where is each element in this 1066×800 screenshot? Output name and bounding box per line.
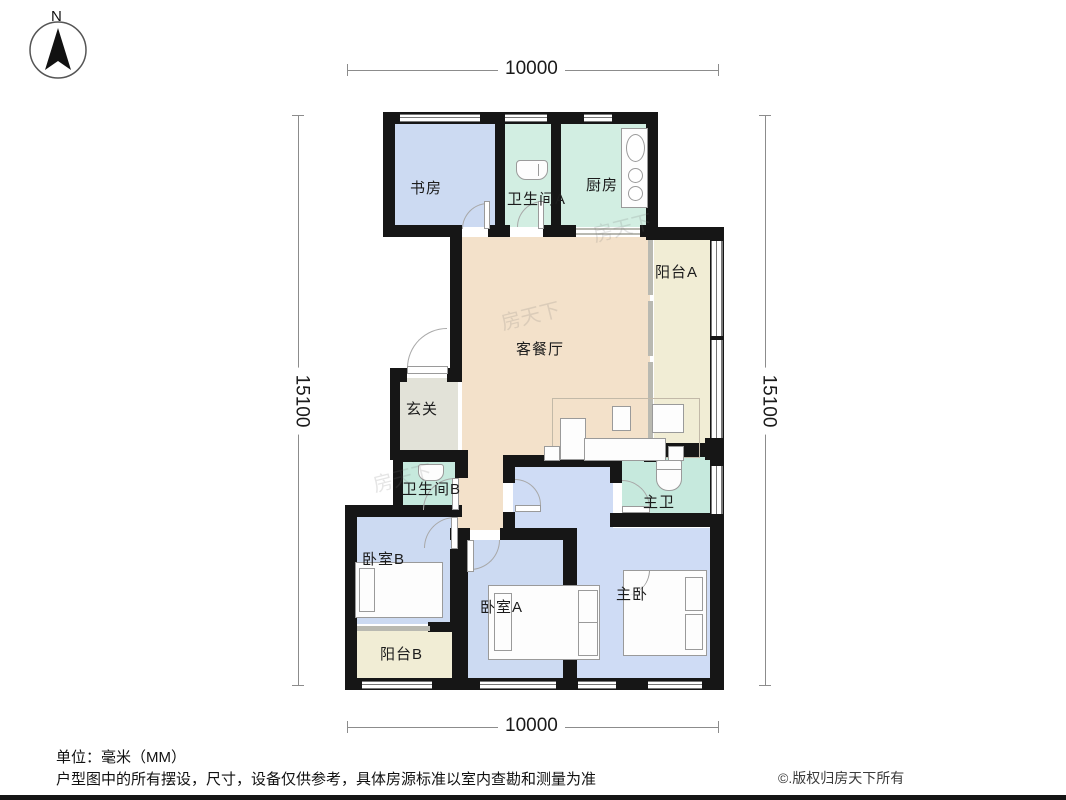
dimension-tick — [718, 64, 719, 76]
window — [505, 114, 547, 122]
table-icon — [612, 406, 631, 431]
disclaimer: 户型图中的所有摆设，尺寸，设备仅供参考，具体房源标准以室内查勘和测量为准 — [56, 768, 596, 789]
dimension-tick — [292, 685, 304, 686]
dimension-tick — [347, 64, 348, 76]
room-label-master-bath: 主卫 — [643, 491, 675, 512]
sofa-icon — [584, 438, 666, 461]
dimension-label-left: 15100 — [290, 368, 312, 435]
wall — [452, 540, 468, 690]
window — [711, 241, 723, 336]
room-label-living-dining: 客餐厅 — [516, 338, 564, 359]
kitchen-sink-icon — [626, 134, 645, 162]
compass-north-label: N — [51, 8, 62, 25]
door-leaf-study — [484, 201, 490, 229]
burner-icon — [628, 168, 643, 183]
door-leaf-bedroom-b — [451, 517, 458, 549]
dimension-tick — [347, 721, 348, 733]
bedside-icon — [578, 590, 598, 656]
side-table-icon — [668, 446, 684, 461]
room-label-balcony-b: 阳台B — [380, 643, 423, 664]
window — [400, 114, 480, 122]
sink-detail — [538, 164, 539, 176]
bedside-detail — [579, 622, 597, 623]
sofa-icon — [560, 418, 586, 460]
compass: N — [24, 8, 92, 84]
door-leaf-master-vestibule — [515, 505, 541, 512]
dimension-tick — [718, 721, 719, 733]
sink-icon — [516, 160, 548, 180]
armchair-icon — [652, 404, 684, 433]
dimension-label-bottom: 10000 — [498, 715, 565, 737]
burner-icon — [628, 186, 643, 201]
window — [578, 681, 616, 689]
wall — [383, 112, 395, 237]
wall — [390, 368, 400, 460]
copyright: ©.版权归房天下所有 — [778, 768, 904, 788]
room-label-master-bedroom: 主卧 — [616, 583, 648, 604]
door-arc-entry — [407, 328, 447, 368]
toilet-detail — [657, 469, 681, 470]
window — [648, 681, 702, 689]
wall — [503, 512, 515, 528]
wall — [543, 225, 576, 237]
room-label-bedroom-b: 卧室B — [362, 548, 405, 569]
window — [584, 114, 612, 122]
balcony-a-divider — [648, 240, 653, 295]
wall — [428, 622, 452, 632]
room-label-kitchen: 厨房 — [586, 174, 618, 195]
bottom-border — [0, 795, 1066, 800]
wall — [450, 232, 462, 375]
floorplan-page: N — [0, 0, 1066, 800]
wall — [455, 450, 468, 478]
wall — [551, 112, 561, 237]
wall — [488, 225, 510, 237]
room-label-foyer: 玄关 — [406, 398, 438, 419]
window — [711, 466, 723, 514]
side-table-icon — [544, 446, 560, 461]
room-label-bedroom-a: 卧室A — [480, 596, 523, 617]
window — [480, 681, 556, 689]
dimension-label-right: 15100 — [757, 368, 779, 435]
pillow-icon — [359, 568, 375, 612]
wall — [447, 368, 462, 382]
room-label-study: 书房 — [410, 177, 442, 198]
pillow-icon — [685, 614, 703, 650]
window — [362, 681, 432, 689]
wall — [503, 465, 515, 483]
balcony-b-divider — [357, 626, 430, 631]
dimension-tick — [759, 115, 771, 116]
dimension-tick — [292, 115, 304, 116]
room-label-bathroom-a: 卫生间A — [507, 188, 566, 209]
wall — [610, 513, 724, 527]
pillow-icon — [685, 577, 703, 611]
toilet-icon — [656, 460, 682, 491]
window — [711, 340, 723, 438]
balcony-a-divider — [648, 301, 653, 356]
unit-note: 单位：毫米（MM） — [56, 746, 186, 767]
room-label-balcony-a: 阳台A — [655, 261, 698, 282]
door-leaf-bedroom-a — [467, 540, 474, 572]
wall — [495, 112, 505, 237]
dimension-tick — [759, 685, 771, 686]
dimension-label-top: 10000 — [498, 58, 565, 80]
door-leaf-entry — [407, 366, 448, 374]
